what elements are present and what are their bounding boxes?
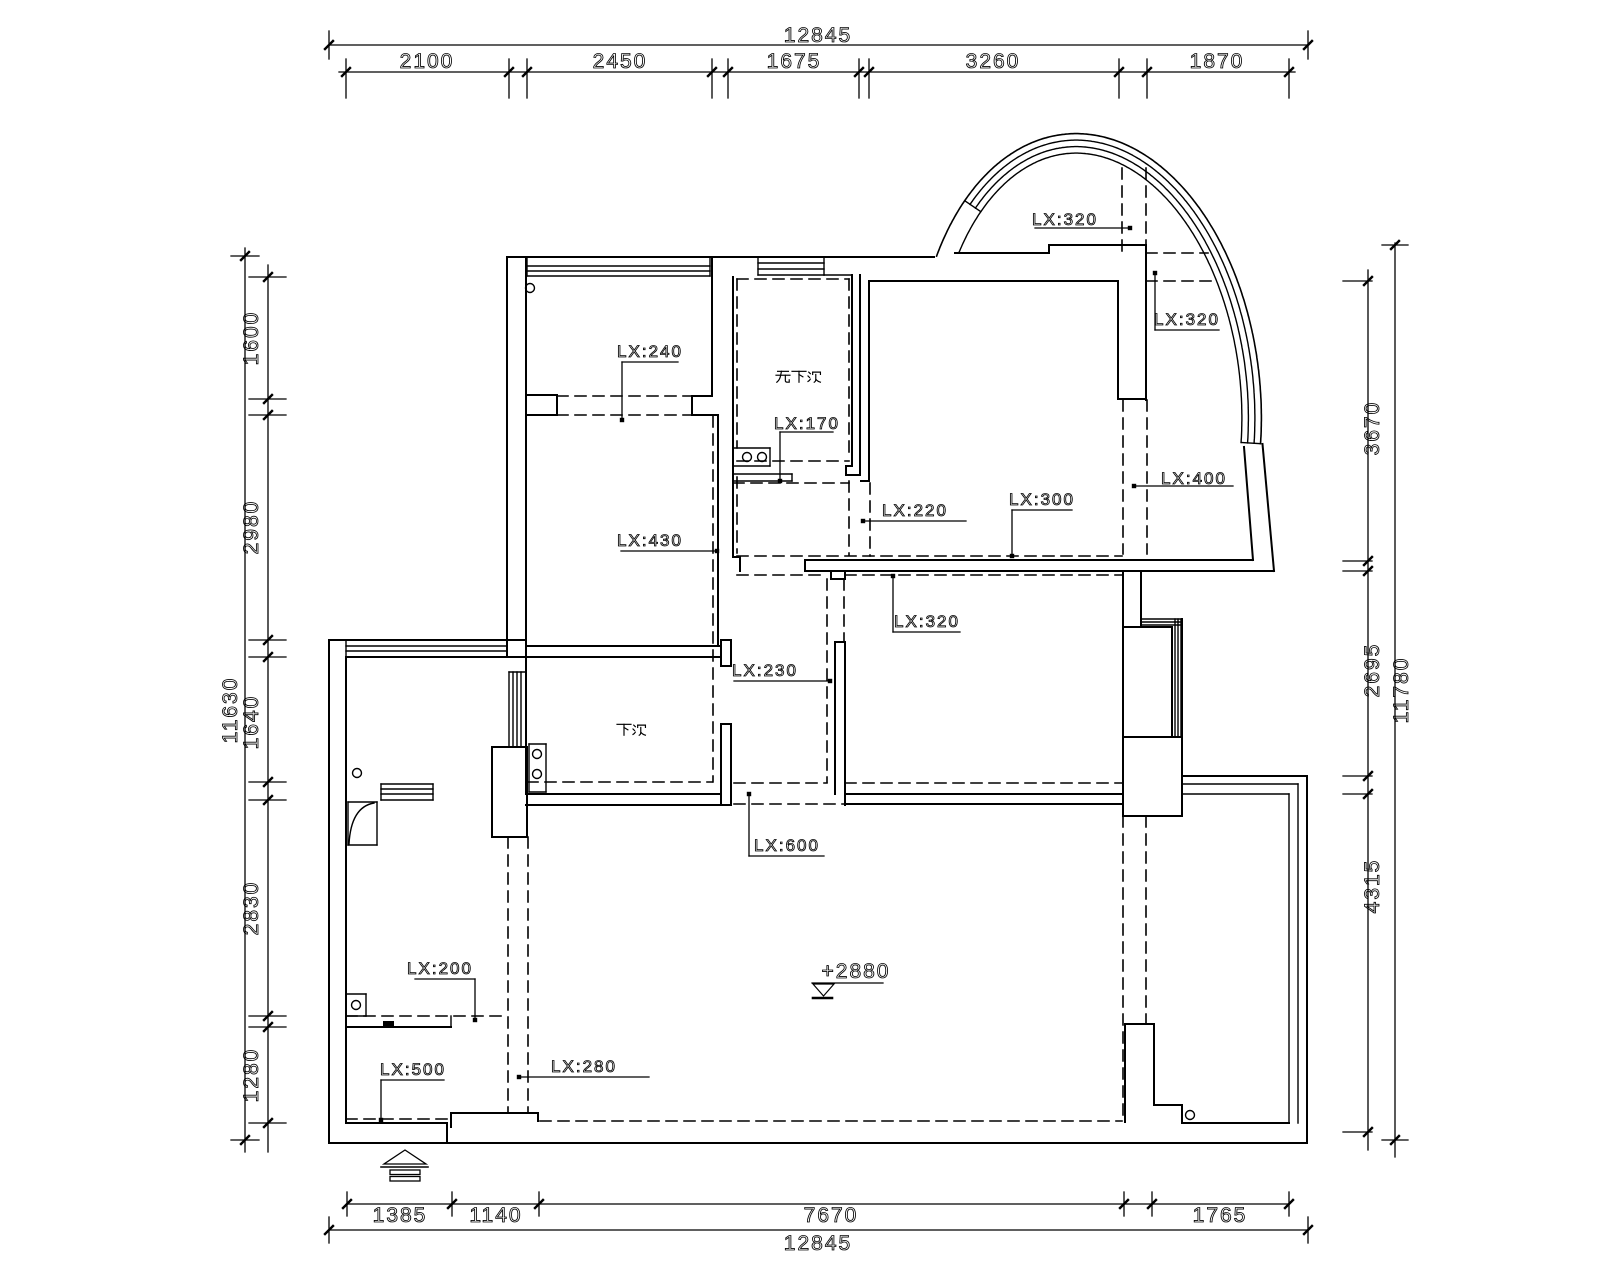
svg-text:2830: 2830 <box>240 881 263 936</box>
svg-text:LX:220: LX:220 <box>882 501 948 520</box>
svg-text:LX:320: LX:320 <box>1032 210 1098 229</box>
svg-text:7670: 7670 <box>804 1204 859 1227</box>
svg-text:LX:400: LX:400 <box>1161 469 1227 488</box>
svg-text:1675: 1675 <box>767 50 822 73</box>
svg-text:1765: 1765 <box>1193 1204 1248 1227</box>
svg-text:3670: 3670 <box>1361 401 1384 456</box>
svg-text:1280: 1280 <box>240 1048 263 1103</box>
svg-text:LX:600: LX:600 <box>754 836 820 855</box>
svg-text:11780: 11780 <box>1390 657 1413 724</box>
svg-text:1600: 1600 <box>240 311 263 366</box>
svg-text:LX:320: LX:320 <box>894 612 960 631</box>
svg-text:LX:280: LX:280 <box>551 1057 617 1076</box>
svg-text:LX:300: LX:300 <box>1009 490 1075 509</box>
svg-text:12845: 12845 <box>784 1232 852 1255</box>
svg-text:2695: 2695 <box>1361 643 1384 698</box>
svg-text:+2880: +2880 <box>822 960 891 983</box>
svg-text:LX:170: LX:170 <box>774 414 840 433</box>
svg-text:2100: 2100 <box>400 50 455 73</box>
svg-text:1640: 1640 <box>240 695 263 750</box>
svg-text:LX:230: LX:230 <box>732 661 798 680</box>
svg-text:11630: 11630 <box>219 677 242 744</box>
svg-text:3260: 3260 <box>966 50 1021 73</box>
svg-text:LX:430: LX:430 <box>617 531 683 550</box>
svg-text:2980: 2980 <box>240 500 263 555</box>
svg-text:4315: 4315 <box>1361 859 1384 914</box>
svg-text:1385: 1385 <box>373 1204 428 1227</box>
svg-text:LX:320: LX:320 <box>1154 310 1220 329</box>
svg-text:2450: 2450 <box>593 50 648 73</box>
svg-text:1870: 1870 <box>1190 50 1245 73</box>
svg-text:12845: 12845 <box>784 24 852 47</box>
svg-text:1140: 1140 <box>469 1204 522 1227</box>
svg-text:LX:240: LX:240 <box>617 342 683 361</box>
svg-text:LX:500: LX:500 <box>380 1060 446 1079</box>
svg-text:LX:200: LX:200 <box>407 959 473 978</box>
